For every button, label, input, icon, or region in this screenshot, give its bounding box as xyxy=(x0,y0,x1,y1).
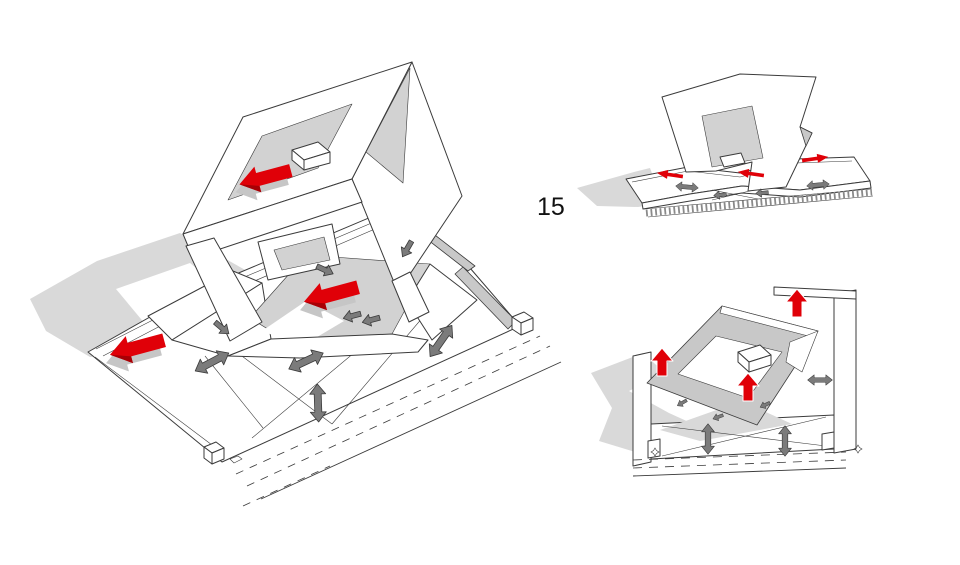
corner-post xyxy=(648,439,660,458)
diagram-page: 15 xyxy=(0,0,960,565)
lower-right-view xyxy=(591,287,862,476)
double-arrow-icon xyxy=(808,375,833,385)
main-axonometric-view xyxy=(30,62,561,506)
single-arrow-icon xyxy=(676,397,689,409)
figure-number: 15 xyxy=(537,193,565,221)
corner-post xyxy=(512,312,533,335)
corner-post xyxy=(204,442,224,464)
corner-post xyxy=(822,432,834,450)
tilted-frame-roof xyxy=(647,306,818,425)
upper-right-view xyxy=(577,74,873,217)
architecture-diagram: 15 xyxy=(0,0,960,565)
